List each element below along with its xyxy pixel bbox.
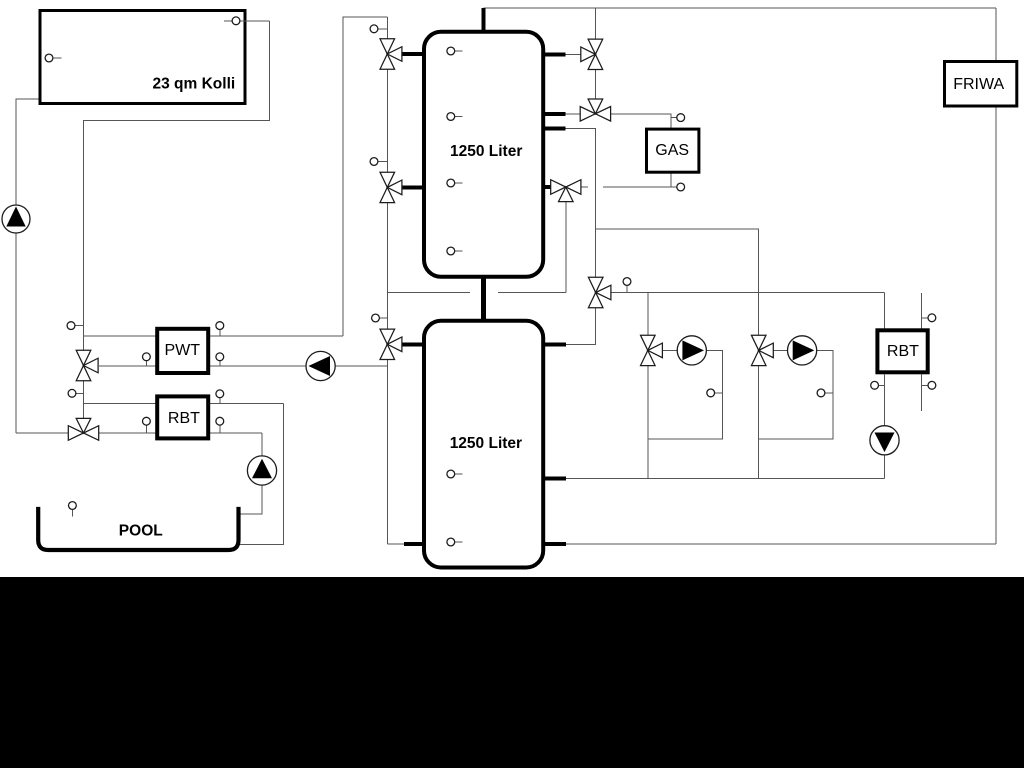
svg-text:1250 Liter: 1250 Liter (450, 435, 522, 452)
svg-text:FRIWA: FRIWA (953, 76, 1004, 93)
svg-text:1250 Liter: 1250 Liter (450, 143, 522, 160)
svg-text:RBT: RBT (887, 343, 919, 360)
svg-text:PWT: PWT (165, 342, 201, 359)
svg-text:23 qm Kolli: 23 qm Kolli (153, 76, 236, 93)
svg-text:RBT: RBT (168, 410, 200, 427)
svg-text:GAS: GAS (655, 142, 689, 159)
svg-text:POOL: POOL (119, 523, 163, 540)
